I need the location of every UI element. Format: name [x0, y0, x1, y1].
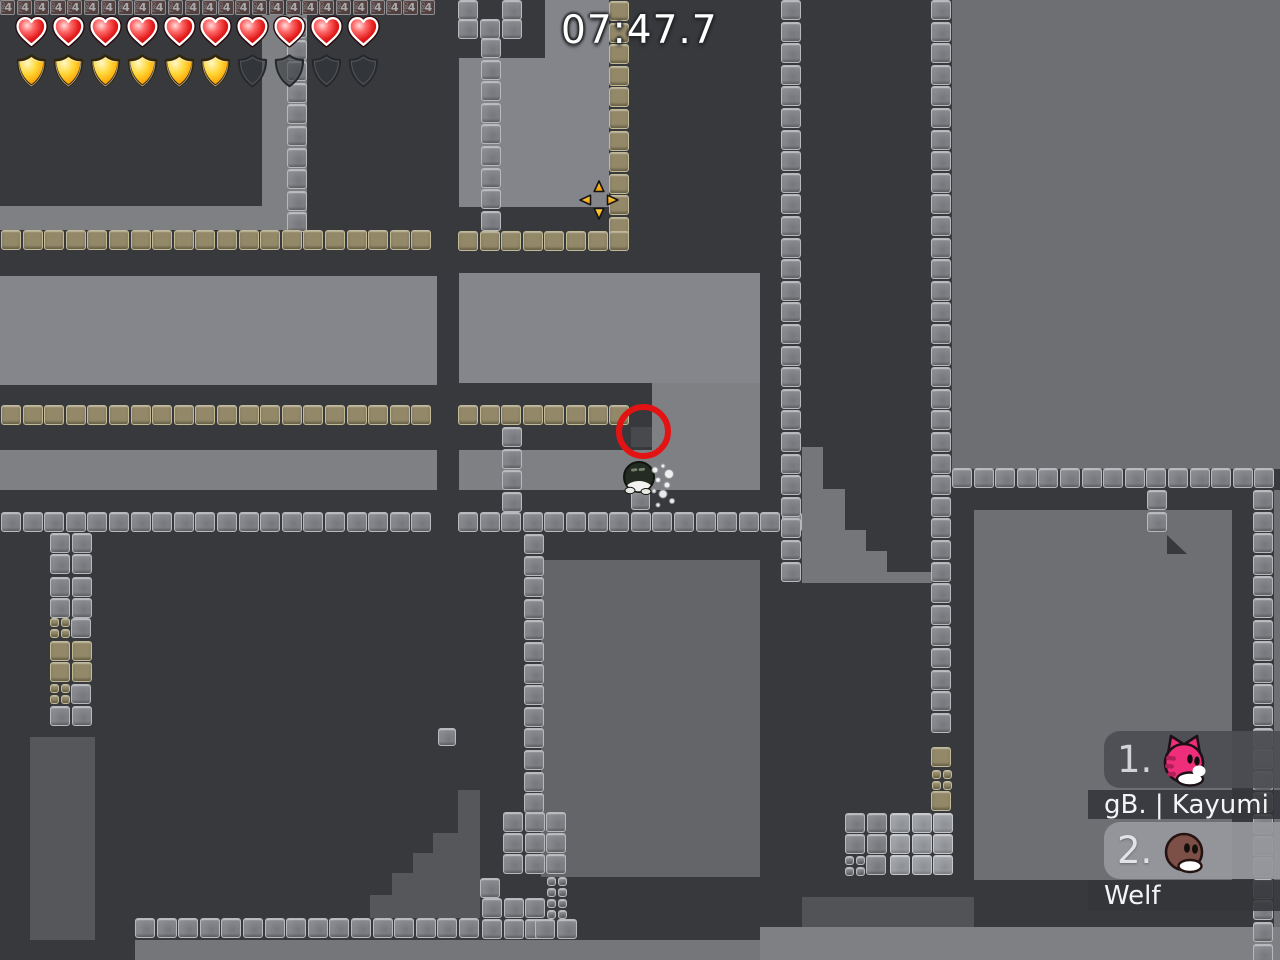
map-tile: [781, 259, 801, 279]
shield-icon: [124, 52, 161, 90]
map-tile: [458, 405, 478, 425]
map-tile: [482, 898, 502, 918]
armor-bar: [13, 52, 382, 90]
map-tile: [931, 670, 951, 690]
map-tile: [260, 512, 280, 532]
map-tile: [781, 216, 801, 236]
rank-label: 1.: [1117, 738, 1152, 781]
map-tile: [781, 454, 801, 474]
map-tile: [931, 130, 951, 150]
map-tile: [416, 918, 436, 938]
map-tile: [373, 918, 393, 938]
map-tile: [609, 152, 629, 172]
map-tile: [61, 629, 70, 638]
map-tile: [546, 812, 566, 832]
map-tile: [588, 512, 608, 532]
map-tile: [781, 302, 801, 322]
heart-icon: [87, 13, 124, 51]
map-tile: [867, 834, 887, 854]
map-tile: [1082, 468, 1102, 488]
map-tile: [931, 43, 951, 63]
map-tile: [525, 833, 545, 853]
map-tile: [287, 148, 307, 168]
map-tile: [217, 230, 237, 250]
rank-label: 2.: [1117, 829, 1152, 872]
map-tile: [931, 86, 951, 106]
map-tile: [609, 131, 629, 151]
map-tile: [696, 512, 716, 532]
map-tile: [845, 813, 865, 833]
map-tile: [44, 405, 64, 425]
map-tile: [523, 231, 543, 251]
map-tile: [1168, 468, 1188, 488]
map-tile: [781, 562, 801, 582]
map-region: [392, 873, 413, 918]
map-tile: [72, 554, 92, 574]
map-tile: [1253, 512, 1273, 532]
map-tile: [524, 599, 544, 619]
map-tile: [890, 834, 910, 854]
map-tile: [525, 898, 545, 918]
map-tile: [66, 512, 86, 532]
map-tile: [23, 230, 43, 250]
map-tile: [1253, 922, 1273, 942]
map-tile: [481, 146, 501, 166]
map-tile: [781, 346, 801, 366]
map-tile: [781, 389, 801, 409]
map-tile: [1253, 706, 1273, 726]
map-tile: [329, 918, 349, 938]
map-tile: [303, 405, 323, 425]
map-tile: [502, 427, 522, 447]
map-tile: [66, 230, 86, 250]
map-tile: [411, 230, 431, 250]
map-tile: [781, 22, 801, 42]
map-tile: [931, 346, 951, 366]
map-tile: [558, 899, 567, 908]
map-tile: [71, 684, 91, 704]
map-tile: [781, 518, 801, 538]
map-region: [866, 551, 887, 583]
map-region: [413, 853, 433, 918]
map-tile: [781, 281, 801, 301]
map-tile: [1253, 533, 1273, 553]
map-slope: [957, 877, 974, 897]
map-tile: [931, 194, 951, 214]
map-tile: [481, 38, 501, 58]
map-tile: [933, 834, 953, 854]
map-tile: [503, 812, 523, 832]
map-tile: [781, 173, 801, 193]
map-tile: [50, 641, 70, 661]
map-tile: [609, 87, 629, 107]
map-tile: [217, 512, 237, 532]
map-region: [823, 489, 845, 583]
map-tile: [1253, 944, 1273, 960]
shield-icon: [161, 52, 198, 90]
player-name-2: Welf: [1088, 880, 1280, 911]
map-tile: [501, 405, 521, 425]
map-tile: [760, 512, 780, 532]
map-tile: [87, 230, 107, 250]
heart-icon: [234, 13, 271, 51]
map-tile: [943, 781, 952, 790]
heart-icon: [308, 13, 345, 51]
map-tile: [1146, 468, 1166, 488]
map-tile: [845, 856, 854, 865]
map-tile: [481, 60, 501, 80]
shield-icon: [197, 52, 234, 90]
map-tile: [524, 664, 544, 684]
map-tile: [547, 910, 556, 919]
map-tile: [547, 888, 556, 897]
map-tile: [303, 230, 323, 250]
map-tile: [781, 410, 801, 430]
map-tile: [239, 230, 259, 250]
map-tile: [866, 855, 886, 875]
map-tile: [931, 540, 951, 560]
map-tile: [525, 812, 545, 832]
map-tile: [481, 124, 501, 144]
map-tile: [931, 747, 951, 767]
map-tile: [1254, 468, 1274, 488]
map-tile: [890, 855, 910, 875]
map-tile: [131, 230, 151, 250]
map-tile: [437, 918, 457, 938]
map-tile: [524, 793, 544, 813]
map-tile: [178, 918, 198, 938]
map-tile: [308, 918, 328, 938]
shield-empty-icon: [345, 52, 382, 90]
map-tile: [781, 432, 801, 452]
map-tile: [1017, 468, 1037, 488]
map-tile: [931, 281, 951, 301]
map-tile: [535, 919, 555, 939]
map-tile: [480, 878, 500, 898]
heart-icon: [345, 13, 382, 51]
map-tile: [481, 168, 501, 188]
map-tile: [931, 216, 951, 236]
map-tile: [109, 512, 129, 532]
map-tile: [260, 230, 280, 250]
map-tile: [631, 512, 651, 532]
map-tile: [931, 518, 951, 538]
map-region: [760, 927, 1280, 960]
map-tile: [157, 918, 177, 938]
map-tile: [502, 19, 522, 39]
map-tile: [287, 191, 307, 211]
map-tile: [260, 405, 280, 425]
map-tile: [524, 707, 544, 727]
map-tile: [1253, 490, 1273, 510]
map-tile: [174, 512, 194, 532]
map-tile: [931, 324, 951, 344]
map-tile: [368, 512, 388, 532]
map-tile: [717, 512, 737, 532]
map-tile: [458, 512, 478, 532]
map-region: [0, 450, 437, 490]
shield-empty-icon: [308, 52, 345, 90]
map-tile: [287, 104, 307, 124]
map-tile: [524, 750, 544, 770]
map-tile: [566, 405, 586, 425]
map-tile: [480, 512, 500, 532]
map-tile: [501, 512, 521, 532]
map-tile: [781, 43, 801, 63]
map-tile: [781, 238, 801, 258]
map-tile: [912, 855, 932, 875]
map-tile: [931, 432, 951, 452]
map-tile: [931, 454, 951, 474]
map-tile: [504, 898, 524, 918]
map-tile: [239, 405, 259, 425]
map-tile: [781, 497, 801, 517]
map-tile: [152, 405, 172, 425]
map-tile: [135, 918, 155, 938]
map-region: [30, 737, 95, 940]
map-tile: [1253, 641, 1273, 661]
map-tile: [544, 405, 564, 425]
map-tile: [609, 231, 629, 251]
map-tile: [66, 405, 86, 425]
map-tile: [502, 470, 522, 490]
map-tile: [480, 231, 500, 251]
numbered-tile: FRO4: [403, 0, 418, 15]
heart-icon: [124, 13, 161, 51]
map-tile: [351, 918, 371, 938]
map-tile: [23, 512, 43, 532]
game-viewport[interactable]: FRO4FRO4FRO4FRO4FRO4FRO4FRO4FRO4FRO4FRO4…: [0, 0, 1280, 960]
map-tile: [1, 512, 21, 532]
map-tile: [931, 562, 951, 582]
map-tile: [50, 618, 59, 627]
map-tile: [325, 512, 345, 532]
map-tile: [504, 919, 524, 939]
map-tile: [131, 405, 151, 425]
map-tile: [995, 468, 1015, 488]
map-tile: [502, 492, 522, 512]
map-tile: [931, 0, 951, 20]
map-tile: [546, 854, 566, 874]
map-tile: [481, 211, 501, 231]
map-region: [458, 790, 480, 918]
map-tile: [1253, 598, 1273, 618]
leaderboard-row-2: 2.: [1104, 822, 1280, 879]
map-tile: [524, 556, 544, 576]
map-tile: [61, 618, 70, 627]
map-tile: [239, 512, 259, 532]
shield-icon: [13, 52, 50, 90]
map-tile: [781, 86, 801, 106]
map-tile: [481, 81, 501, 101]
map-tile: [325, 230, 345, 250]
red-circle-marker: [616, 404, 671, 459]
map-tile: [72, 533, 92, 553]
map-tile: [200, 918, 220, 938]
map-tile: [931, 605, 951, 625]
map-tile: [503, 833, 523, 853]
crosshair-icon: [576, 177, 622, 223]
map-tile: [781, 130, 801, 150]
map-tile: [524, 534, 544, 554]
map-tile: [546, 833, 566, 853]
map-tile: [524, 642, 544, 662]
map-tile: [931, 259, 951, 279]
map-tile: [390, 405, 410, 425]
map-tile: [781, 324, 801, 344]
map-tile: [368, 230, 388, 250]
map-tile: [524, 620, 544, 640]
map-tile: [931, 791, 951, 811]
map-tile: [44, 230, 64, 250]
numbered-tile: FRO4: [386, 0, 401, 15]
map-tile: [1038, 468, 1058, 488]
map-tile: [411, 405, 431, 425]
map-tile: [931, 389, 951, 409]
map-tile: [109, 405, 129, 425]
map-tile: [482, 919, 502, 939]
map-tile: [1253, 555, 1273, 575]
heart-icon: [161, 13, 198, 51]
map-tile: [781, 367, 801, 387]
map-tile: [481, 189, 501, 209]
map-tile: [50, 662, 70, 682]
map-tile: [1147, 512, 1167, 532]
map-tile: [50, 598, 70, 618]
map-tile: [890, 813, 910, 833]
map-tile: [524, 728, 544, 748]
map-tile: [458, 19, 478, 39]
map-tile: [781, 151, 801, 171]
map-tile: [609, 66, 629, 86]
map-tile: [72, 662, 92, 682]
map-tile: [50, 706, 70, 726]
shield-icon: [87, 52, 124, 90]
map-tile: [845, 867, 854, 876]
map-region: [433, 833, 458, 918]
map-tile: [501, 231, 521, 251]
map-tile: [265, 918, 285, 938]
map-tile: [195, 230, 215, 250]
map-tile: [503, 854, 523, 874]
map-tile: [931, 475, 951, 495]
map-tile: [845, 834, 865, 854]
map-tile: [1253, 576, 1273, 596]
map-tile: [195, 512, 215, 532]
map-tile: [931, 173, 951, 193]
health-bar: [13, 13, 382, 51]
map-tile: [502, 449, 522, 469]
map-region: [887, 572, 932, 583]
map-tile: [347, 512, 367, 532]
map-tile: [781, 65, 801, 85]
map-tile: [347, 230, 367, 250]
map-tile: [974, 468, 994, 488]
map-tile: [558, 910, 567, 919]
map-tile: [411, 512, 431, 532]
map-tile: [523, 405, 543, 425]
map-tile: [282, 512, 302, 532]
heart-icon: [50, 13, 87, 51]
map-region: [370, 895, 392, 918]
map-tile: [557, 919, 577, 939]
map-tile: [1253, 663, 1273, 683]
map-region: [0, 206, 262, 230]
map-region: [135, 940, 760, 960]
map-tile: [109, 230, 129, 250]
shield-empty-icon: [271, 52, 308, 90]
map-tile: [1233, 468, 1253, 488]
map-tile: [152, 230, 172, 250]
map-tile: [1190, 468, 1210, 488]
map-tile: [1, 230, 21, 250]
map-tile: [61, 695, 70, 704]
map-tile: [933, 855, 953, 875]
map-tile: [931, 713, 951, 733]
map-tile: [912, 834, 932, 854]
map-tile: [394, 918, 414, 938]
map-tile: [347, 405, 367, 425]
map-tile: [547, 877, 556, 886]
map-tile: [174, 230, 194, 250]
map-tile: [390, 512, 410, 532]
map-tile: [932, 781, 941, 790]
race-timer: 07:47.7: [561, 8, 718, 53]
heart-icon: [197, 13, 234, 51]
map-tile: [1211, 468, 1231, 488]
map-tile: [931, 648, 951, 668]
map-tile: [931, 238, 951, 258]
map-tile: [524, 685, 544, 705]
hit-particles: [645, 460, 681, 512]
map-tile: [912, 813, 932, 833]
map-tile: [867, 813, 887, 833]
map-tile: [544, 231, 564, 251]
map-tile: [943, 770, 952, 779]
map-tile: [525, 854, 545, 874]
map-tile: [558, 877, 567, 886]
map-tile: [931, 583, 951, 603]
map-tile: [243, 918, 263, 938]
map-tile: [931, 108, 951, 128]
map-tile: [588, 231, 608, 251]
map-tile: [781, 194, 801, 214]
map-tile: [547, 899, 556, 908]
map-tile: [368, 405, 388, 425]
map-tile: [72, 598, 92, 618]
map-tile: [781, 475, 801, 495]
map-tile: [50, 695, 59, 704]
map-tile: [325, 405, 345, 425]
map-tile: [781, 540, 801, 560]
map-tile: [195, 405, 215, 425]
map-tile: [544, 512, 564, 532]
map-tile: [390, 230, 410, 250]
map-tile: [481, 103, 501, 123]
map-tile: [931, 691, 951, 711]
map-tile: [523, 512, 543, 532]
map-region: [802, 447, 823, 583]
map-tile: [566, 512, 586, 532]
heart-icon: [271, 13, 308, 51]
map-tile: [459, 918, 479, 938]
map-tile: [652, 512, 672, 532]
map-region: [0, 276, 437, 385]
map-tile: [23, 405, 43, 425]
map-tile: [458, 231, 478, 251]
map-tile: [217, 405, 237, 425]
map-tile: [44, 512, 64, 532]
